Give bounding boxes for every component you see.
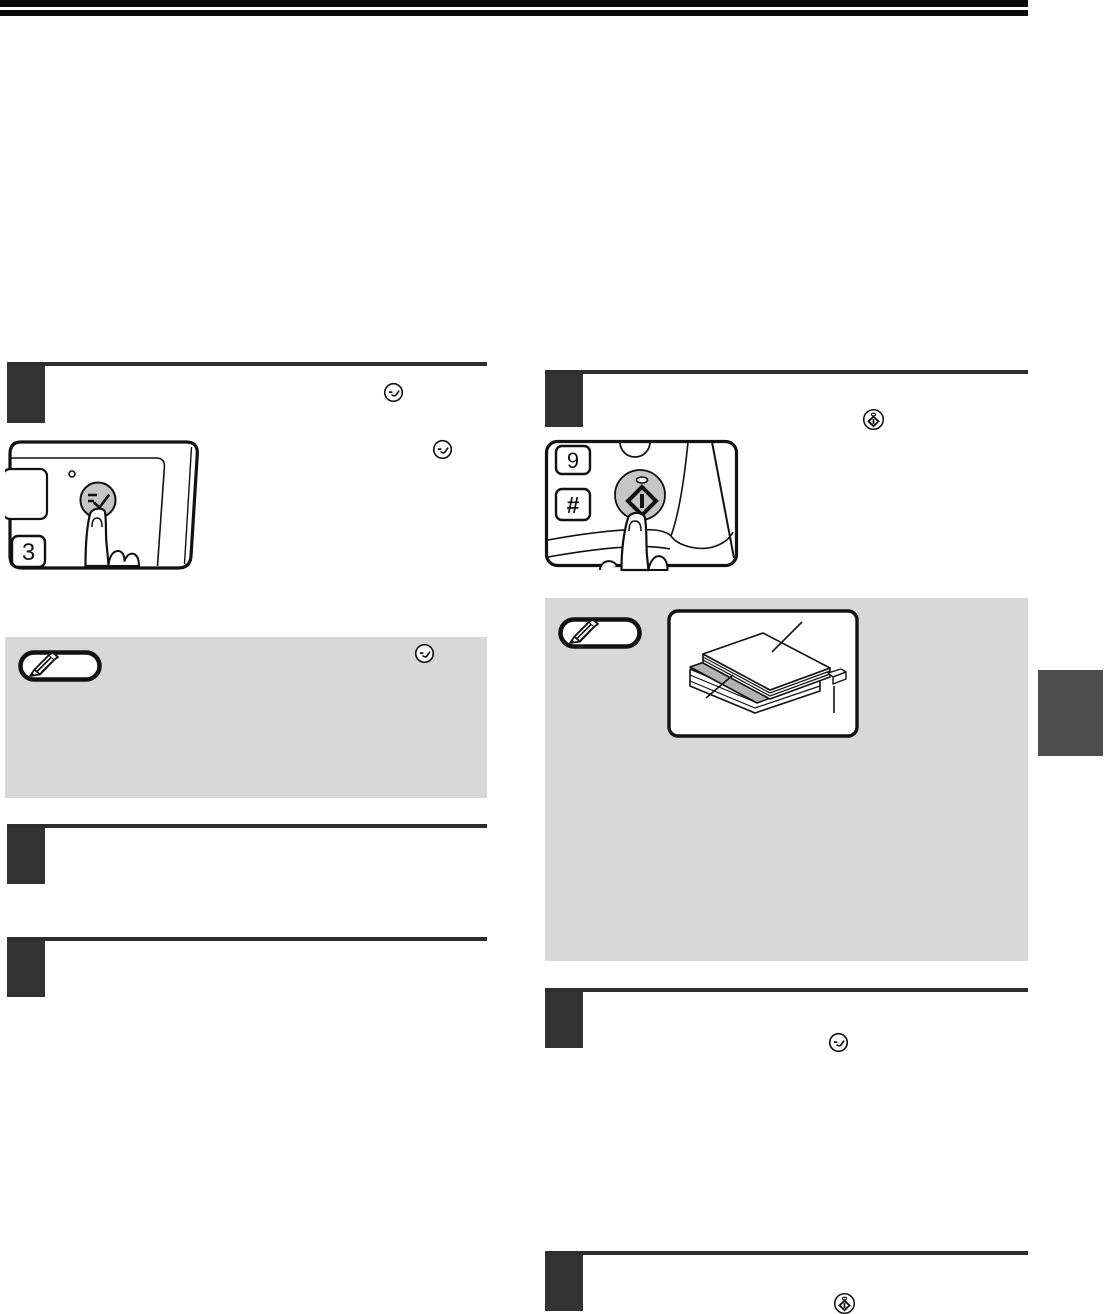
right-step1-number-box: [545, 374, 583, 427]
left-step2-rule: [7, 824, 487, 828]
key-hash-label: #: [567, 492, 580, 518]
right-step3-rule: [545, 1251, 1028, 1255]
key-9-label: 9: [567, 448, 579, 473]
left-step3-number-box: [7, 941, 45, 997]
left-step1-number-box: [7, 366, 45, 423]
manual-page: 3 9 #: [0, 0, 1111, 1314]
control-panel-start-key-illustration: 9 #: [543, 438, 743, 572]
check-key-icon: [432, 439, 453, 460]
header-rule-thick: [0, 0, 1028, 7]
insert-sheet-paper-stack-illustration: [666, 608, 860, 740]
check-key-icon: [414, 643, 435, 664]
right-step2-rule: [545, 988, 1028, 992]
right-step1-rule: [545, 370, 1028, 374]
right-step3-number-box: [545, 1255, 583, 1311]
left-step2-number-box: [7, 828, 45, 884]
check-key-icon: [383, 382, 404, 403]
pencil-icon: [18, 650, 102, 682]
check-key-icon: [828, 1032, 849, 1053]
start-key-icon: [833, 1292, 856, 1314]
chapter-side-tab: [1038, 670, 1103, 756]
key-3-label: 3: [22, 539, 35, 566]
start-key-icon: [862, 408, 885, 431]
right-step2-number-box: [545, 992, 583, 1048]
left-step3-rule: [7, 937, 487, 941]
left-step1-rule: [7, 362, 487, 366]
pencil-icon: [558, 617, 642, 649]
control-panel-check-key-illustration: 3: [5, 440, 205, 572]
header-rule-thin: [0, 10, 1028, 16]
